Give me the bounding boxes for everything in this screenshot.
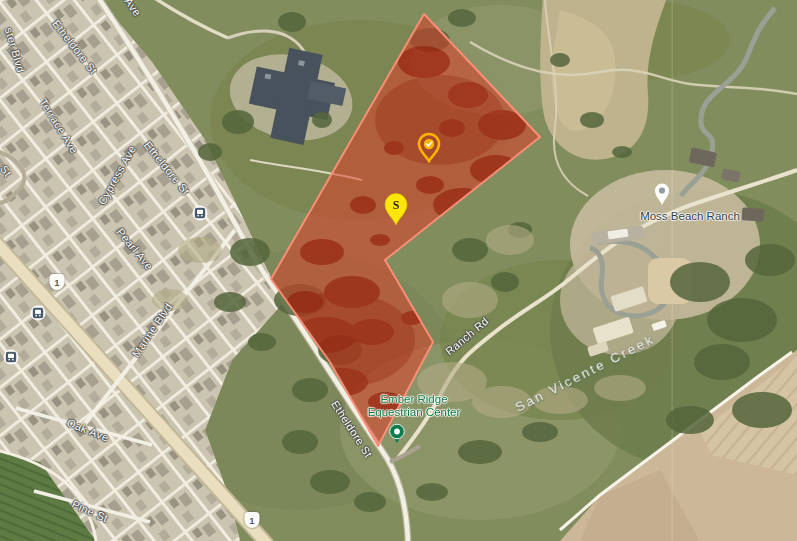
poi-label-line2: Equestrian Center [368,405,461,418]
satellite-imagery [0,0,797,541]
poi-label-ember-ridge-equestrian-center[interactable]: Ember Ridge Equestrian Center [368,393,461,418]
pin-body [655,184,669,206]
pin-letter: S [393,198,400,212]
equestrian-center-marker[interactable] [388,423,406,444]
poi-label-line1: Ember Ridge [368,393,461,406]
bus-stop-icon[interactable] [3,349,19,365]
check-pin[interactable] [415,131,443,163]
pin-dot [659,187,665,193]
satellite-map-canvas[interactable]: Etheldore St Etheldore St Etheldore St T… [0,0,797,541]
poi-label-moss-beach-ranch[interactable]: Moss Beach Ranch [640,210,740,222]
route-1-shield: 1 [245,512,260,528]
moss-beach-ranch-pin[interactable] [652,181,672,207]
route-number: 1 [54,277,59,288]
s-pin[interactable]: S [383,193,409,227]
bus-stop-icon[interactable] [192,205,208,221]
route-1-shield: 1 [50,274,65,290]
pin-dot [394,429,400,435]
bus-stop-icon[interactable] [30,305,46,321]
route-number: 1 [249,515,254,526]
